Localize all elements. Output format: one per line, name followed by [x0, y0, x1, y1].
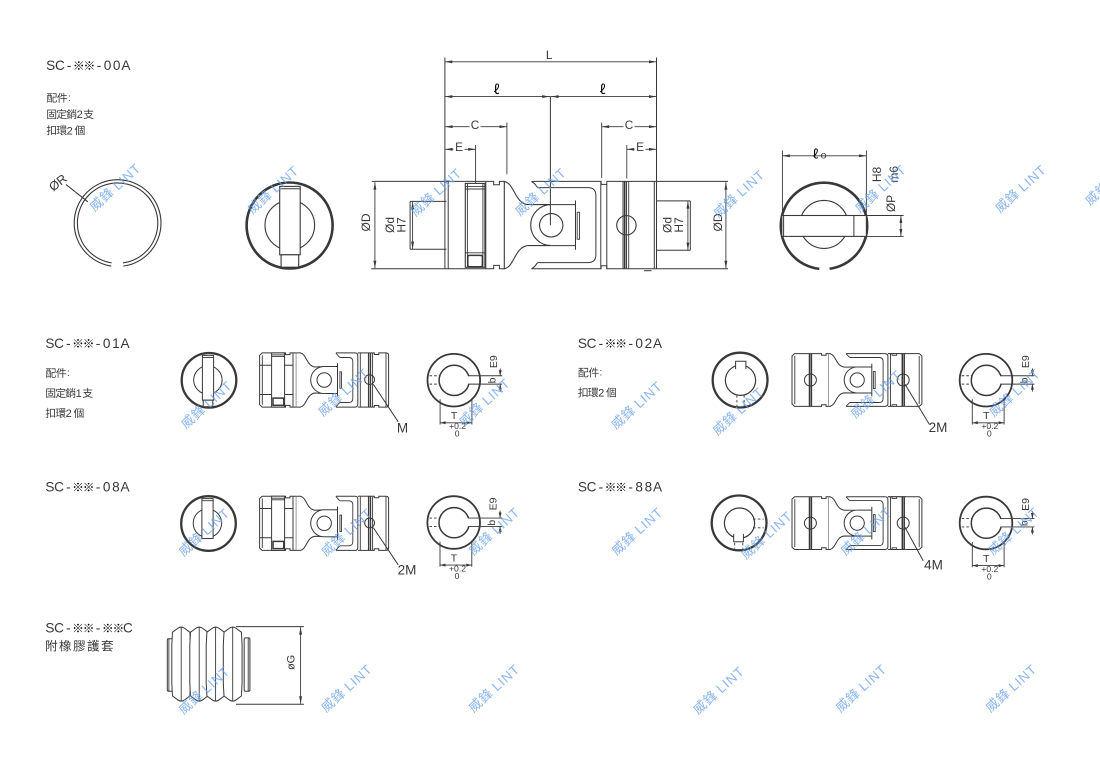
svg-text:S: S — [46, 58, 55, 73]
svg-text:2M: 2M — [398, 563, 417, 578]
svg-text:C: C — [587, 480, 597, 495]
svg-text:A: A — [653, 336, 663, 351]
svg-text:8: 8 — [112, 480, 120, 495]
svg-text:S: S — [578, 480, 587, 495]
svg-text:0: 0 — [104, 58, 112, 73]
svg-text:0: 0 — [987, 429, 992, 439]
svg-text:0: 0 — [635, 336, 643, 351]
svg-text:-: - — [66, 479, 71, 495]
svg-text:C: C — [54, 621, 64, 636]
svg-text:-: - — [97, 57, 102, 73]
svg-text:-: - — [628, 335, 633, 351]
svg-text:0: 0 — [455, 429, 460, 439]
svg-text:-: - — [67, 57, 72, 73]
svg-text:C: C — [54, 480, 64, 495]
svg-text:-: - — [96, 620, 101, 636]
svg-text:4M: 4M — [924, 558, 943, 573]
svg-text:H7: H7 — [394, 217, 408, 233]
svg-text:ØP: ØP — [884, 195, 898, 212]
svg-text:S: S — [45, 480, 54, 495]
svg-text:1: 1 — [112, 336, 120, 351]
svg-text:0: 0 — [113, 58, 121, 73]
svg-text:-: - — [628, 479, 633, 495]
svg-text:-: - — [96, 335, 101, 351]
svg-text:C: C — [123, 621, 133, 636]
svg-text:A: A — [121, 480, 131, 495]
svg-text:S: S — [578, 336, 587, 351]
svg-text:C: C — [625, 118, 634, 132]
svg-text:C: C — [587, 336, 597, 351]
svg-text:8: 8 — [635, 480, 643, 495]
svg-text:0: 0 — [103, 480, 111, 495]
svg-text:C: C — [55, 58, 65, 73]
svg-text:S: S — [45, 621, 54, 636]
svg-text:2: 2 — [66, 408, 72, 420]
svg-text:-: - — [96, 479, 101, 495]
svg-text:-: - — [66, 620, 71, 636]
svg-text:o: o — [821, 150, 827, 162]
svg-text:2M: 2M — [929, 420, 948, 435]
svg-text:A: A — [121, 336, 131, 351]
svg-text:H7: H7 — [672, 217, 686, 233]
svg-text:2: 2 — [77, 109, 83, 121]
svg-text:E9: E9 — [488, 355, 500, 368]
svg-text:E: E — [455, 140, 463, 154]
svg-text:A: A — [121, 58, 131, 73]
svg-text:8: 8 — [645, 480, 653, 495]
svg-text:1: 1 — [76, 388, 82, 400]
svg-text:0: 0 — [987, 572, 992, 582]
svg-text:-: - — [598, 479, 603, 495]
svg-text:0: 0 — [103, 336, 111, 351]
svg-text:-: - — [66, 335, 71, 351]
svg-text:M: M — [397, 421, 408, 436]
svg-text:A: A — [653, 480, 663, 495]
svg-text:E9: E9 — [1020, 355, 1032, 368]
svg-text:E: E — [636, 140, 644, 154]
svg-text:L: L — [546, 48, 553, 62]
svg-text:S: S — [45, 336, 54, 351]
svg-text::: : — [600, 368, 603, 379]
svg-text::: : — [67, 368, 70, 379]
svg-text:E9: E9 — [488, 497, 500, 510]
svg-text:0: 0 — [455, 571, 460, 581]
svg-text:2: 2 — [598, 388, 604, 400]
svg-text:C: C — [54, 336, 64, 351]
svg-text::: : — [68, 93, 71, 104]
svg-text:-: - — [598, 335, 603, 351]
svg-text:C: C — [471, 118, 480, 132]
svg-text:2: 2 — [645, 336, 653, 351]
svg-text:øG: øG — [286, 655, 298, 670]
svg-text:ØD: ØD — [359, 213, 373, 231]
svg-text:2: 2 — [67, 125, 73, 137]
